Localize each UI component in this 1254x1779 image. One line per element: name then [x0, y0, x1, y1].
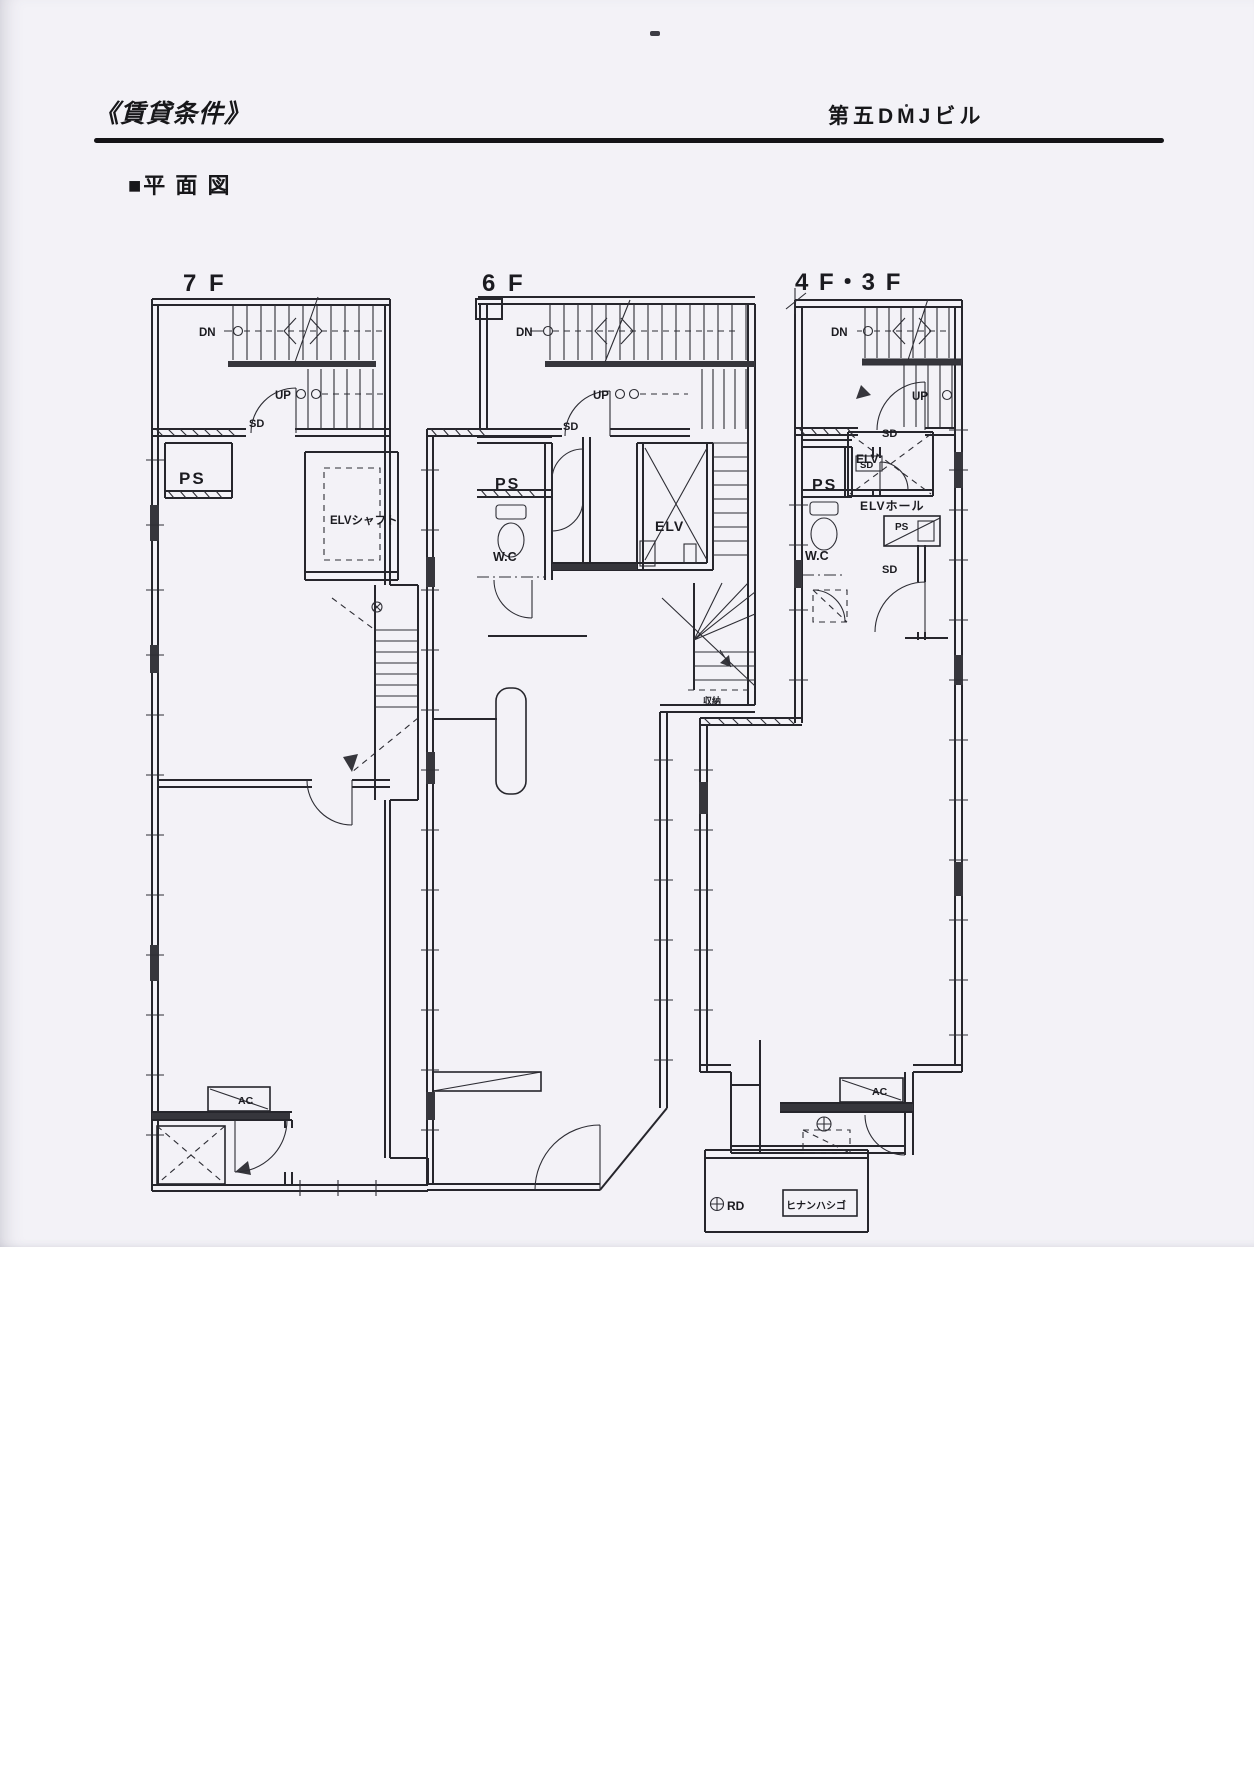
- label-7f-dn: DN: [199, 327, 216, 339]
- label-6f-ps: PS: [495, 476, 520, 493]
- 6f-door-arcs: [494, 391, 610, 1190]
- label-43-dn: DN: [831, 327, 848, 339]
- label-43-sd-hall: SD: [882, 564, 897, 576]
- label-43-ladder: ヒナンハシゴ: [786, 1199, 846, 1212]
- 43-stair-treads: [862, 307, 962, 427]
- label-7f-up: UP: [275, 390, 291, 402]
- 7f-dashed-lines: [157, 331, 418, 1184]
- 6f-stair-treads: [550, 304, 755, 680]
- 6f-walls: [427, 297, 755, 1190]
- 7f-walls: [152, 299, 428, 1191]
- 43-toilet: [810, 502, 838, 550]
- label-6f-storage: 収納: [703, 695, 721, 706]
- floor-plans-drawing: 7 F DN UP SD PS ELVシャフト AC: [0, 0, 1254, 1779]
- label-7f-ps: PS: [179, 469, 206, 488]
- 43-solid-fills: [699, 359, 963, 1111]
- floor-label-6f: 6 F: [482, 270, 526, 297]
- label-6f-wc: W.C: [493, 550, 517, 564]
- label-43-up: UP: [912, 391, 928, 403]
- label-43-elv-hall: ELVホール: [860, 499, 924, 513]
- label-43-rd: RD: [727, 1199, 745, 1213]
- label-43-sd-stair: SD: [882, 428, 897, 440]
- 7f-details: [146, 297, 381, 1196]
- label-43-elv: ELV: [856, 452, 878, 466]
- label-43-ac: AC: [872, 1086, 888, 1098]
- floor-plan-7f: 7 F DN UP SD PS ELVシャフト AC: [146, 270, 428, 1196]
- 6f-bathtub: [496, 688, 526, 794]
- label-43-ps: PS: [812, 477, 837, 494]
- label-6f-up: UP: [593, 390, 609, 402]
- floor-plan-6f: 6 F DN UP SD PS W.C ELV 収納: [421, 270, 755, 1190]
- label-7f-ac: AC: [238, 1095, 254, 1107]
- floor-label-4f3f: 4 F・3 F: [795, 269, 902, 296]
- label-6f-dn: DN: [516, 327, 533, 339]
- 43-stair-markers: [711, 327, 952, 1211]
- label-7f-sd: SD: [249, 418, 264, 430]
- 43-walls: [700, 300, 962, 1232]
- label-7f-elv-shaft: ELVシャフト: [330, 514, 398, 527]
- label-6f-elv: ELV: [655, 518, 684, 534]
- label-6f-sd: SD: [563, 421, 578, 433]
- label-43-wc: W.C: [805, 549, 829, 563]
- paper-background: 《賃貸条件》 第五DMJビル ■平 面 図: [0, 0, 1254, 1247]
- scanned-page: 《賃貸条件》 第五DMJビル ■平 面 図: [0, 0, 1254, 1779]
- label-43-ps-right: PS: [895, 522, 909, 533]
- 43-ps-right-sink: [918, 521, 934, 541]
- 6f-details: [421, 300, 755, 1130]
- floor-label-7f: 7 F: [183, 270, 227, 297]
